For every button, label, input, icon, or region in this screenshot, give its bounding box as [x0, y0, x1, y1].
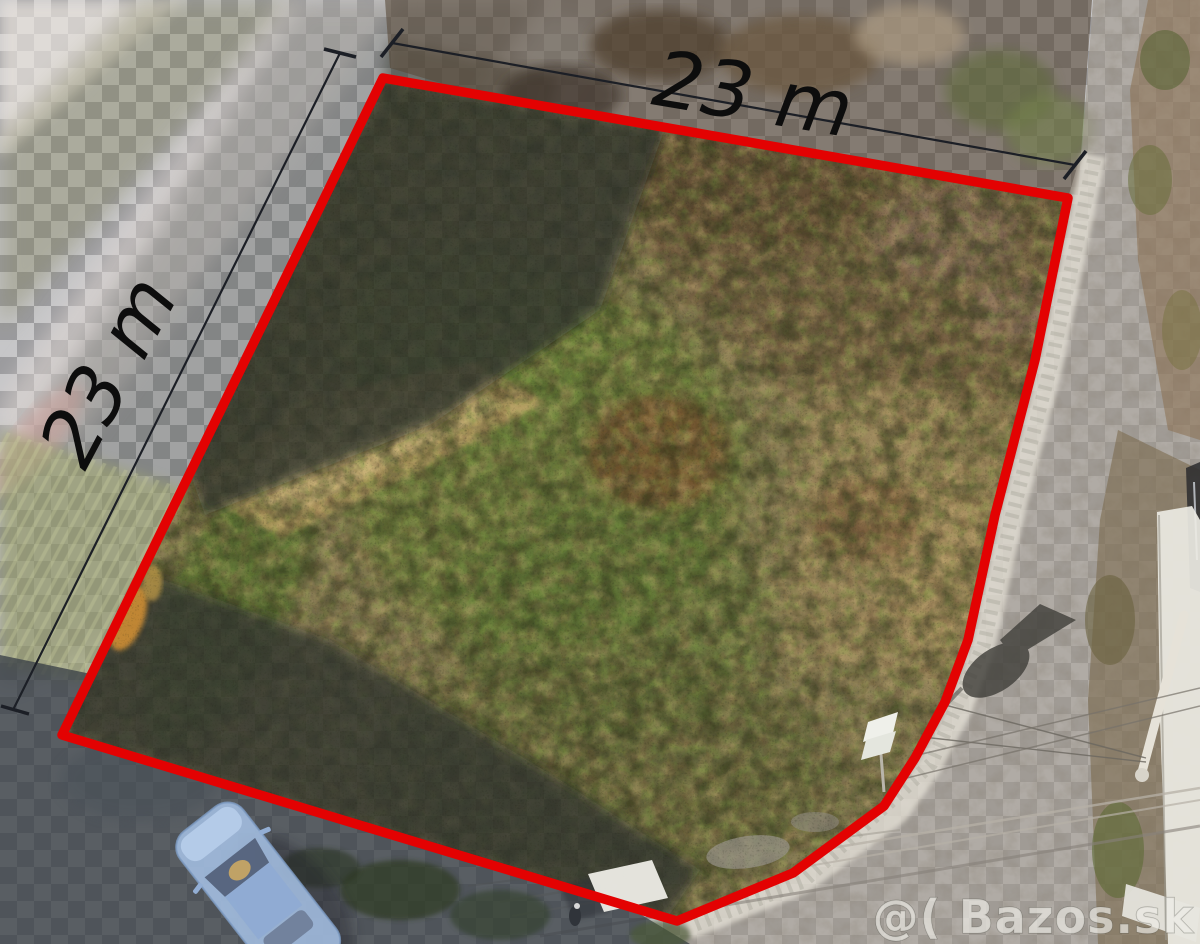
- shrub: [1085, 575, 1135, 665]
- person-figure: [569, 906, 581, 926]
- aerial-photo-canvas: 23 m 23 m @( Bazos.sk: [0, 0, 1200, 944]
- watermark-text: @( Bazos.sk: [873, 890, 1195, 944]
- pole-base: [1135, 768, 1149, 782]
- shrub: [1128, 145, 1172, 215]
- scene-svg: 23 m 23 m @( Bazos.sk: [0, 0, 1200, 944]
- dirt-patch: [855, 5, 965, 65]
- person-head: [574, 903, 580, 909]
- shrub: [1140, 30, 1190, 90]
- dark-grass: [450, 890, 550, 940]
